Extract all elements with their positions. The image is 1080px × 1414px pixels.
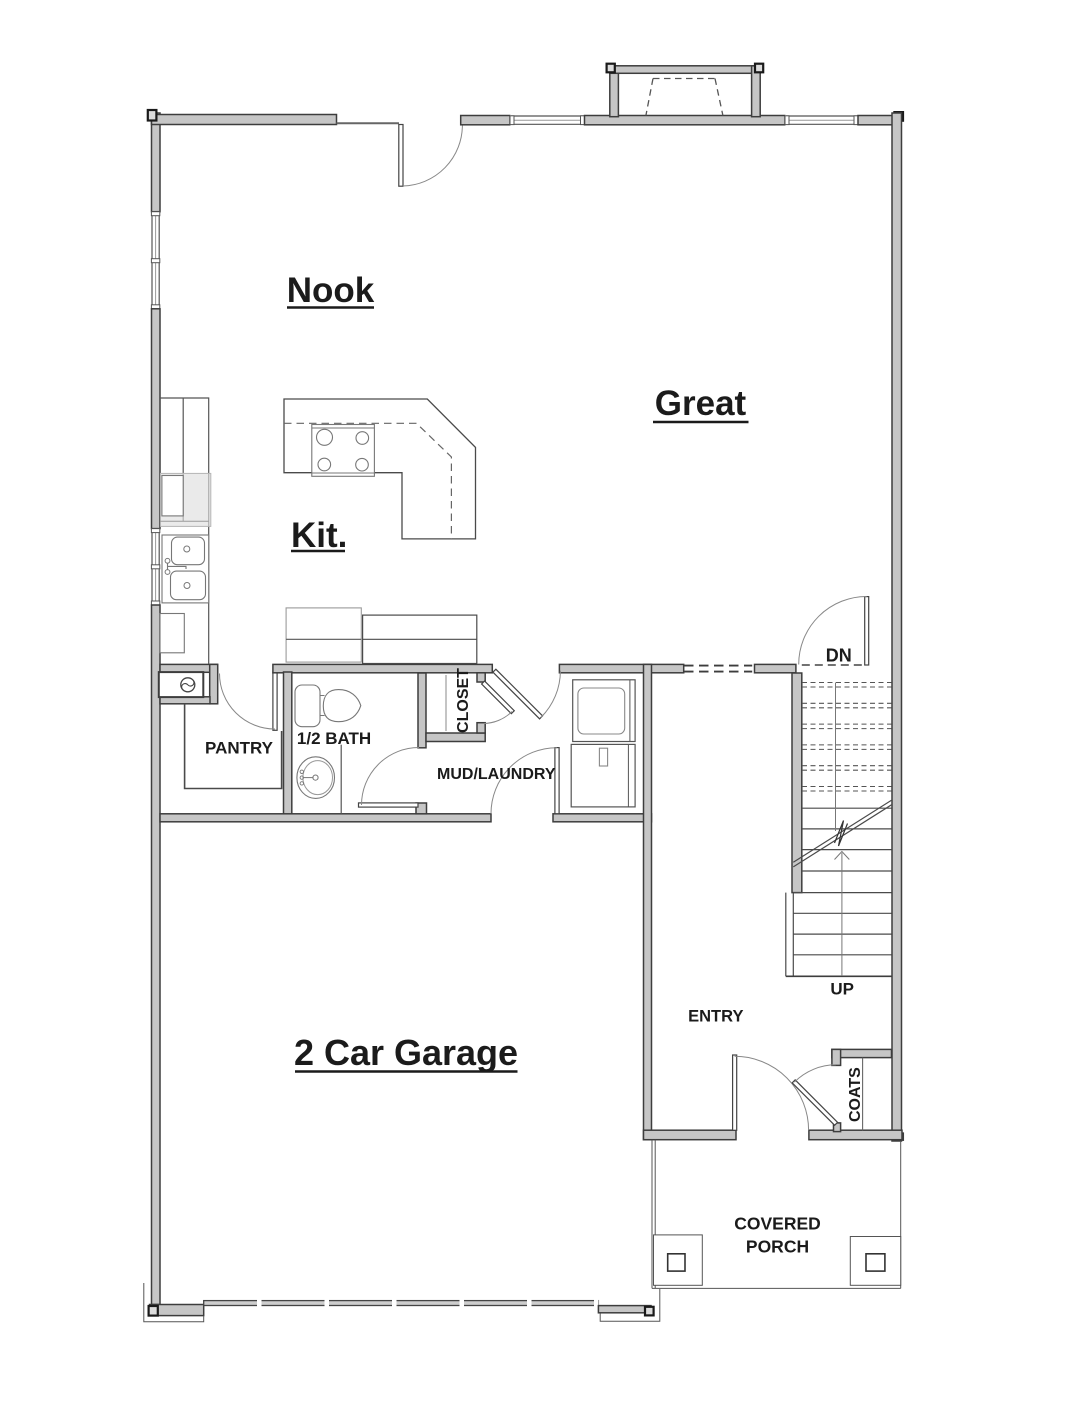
svg-text:MUD/LAUNDRY: MUD/LAUNDRY	[437, 766, 556, 783]
svg-text:ENTRY: ENTRY	[688, 1008, 743, 1026]
svg-text:COVERED: COVERED	[734, 1214, 821, 1234]
svg-text:DN: DN	[826, 646, 852, 666]
svg-text:Nook: Nook	[287, 271, 375, 310]
svg-text:2 Car Garage: 2 Car Garage	[294, 1032, 518, 1073]
svg-text:PORCH: PORCH	[746, 1237, 809, 1257]
svg-text:UP: UP	[830, 980, 854, 999]
svg-text:Kit.: Kit.	[291, 516, 347, 555]
svg-text:CLOSET: CLOSET	[455, 668, 472, 733]
svg-text:1/2 BATH: 1/2 BATH	[297, 729, 371, 748]
svg-text:PANTRY: PANTRY	[205, 739, 274, 758]
svg-text:Great: Great	[655, 384, 747, 423]
svg-text:COATS: COATS	[847, 1067, 864, 1122]
